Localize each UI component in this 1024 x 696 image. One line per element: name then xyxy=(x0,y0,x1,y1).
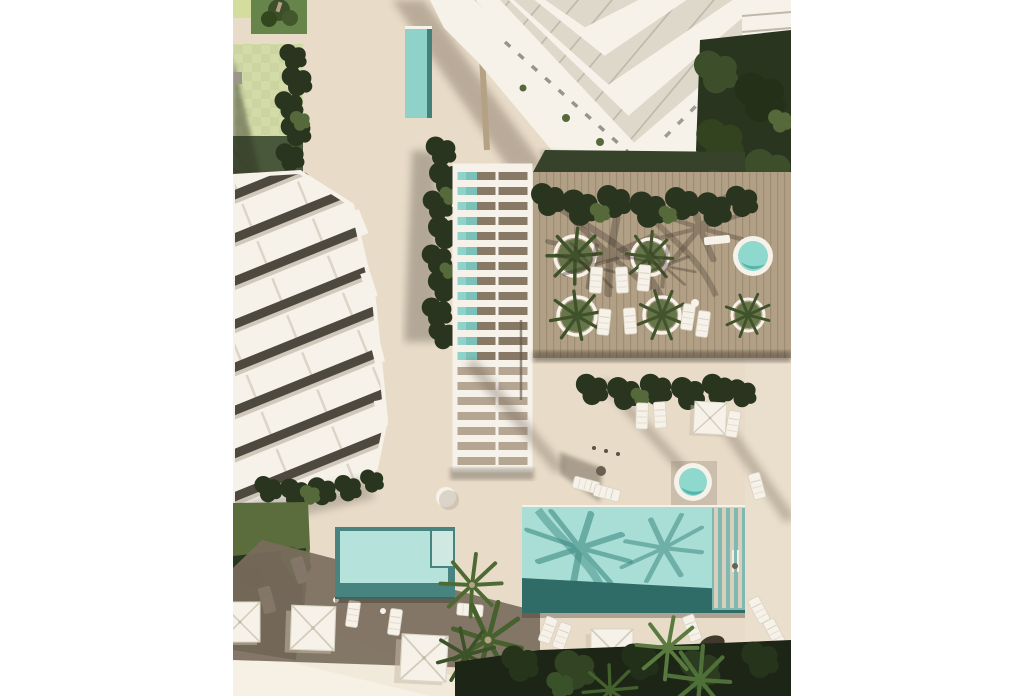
kids-pool xyxy=(335,527,455,603)
pool-steps-right xyxy=(712,508,745,610)
sun-lounger xyxy=(636,403,649,429)
round-spa-upper xyxy=(733,236,773,276)
round-spa-lower xyxy=(671,461,717,505)
sun-lounger xyxy=(589,267,603,294)
terrace-plant xyxy=(562,114,570,122)
court-equipment xyxy=(234,72,242,84)
sun-lounger xyxy=(623,308,637,335)
main-pool xyxy=(515,492,745,618)
court-edge-strip xyxy=(233,0,253,18)
sun-lounger xyxy=(653,402,666,429)
round-table-dark xyxy=(596,466,606,476)
side-table xyxy=(691,299,699,307)
round-table-shadow xyxy=(439,490,459,510)
pergola-end-shadow xyxy=(450,468,534,480)
aerial-render xyxy=(0,0,1024,696)
lawn-square-top-left xyxy=(251,0,307,34)
pool-step-bench xyxy=(568,584,626,613)
timber-sun-deck xyxy=(531,172,791,362)
sun-lounger xyxy=(615,267,628,294)
terrace-plant xyxy=(520,85,527,92)
parasol xyxy=(215,602,260,645)
render-canvas xyxy=(0,0,1024,696)
sun-lounger xyxy=(637,265,651,292)
terrace-plant xyxy=(596,138,604,146)
pool-edge-shadow xyxy=(522,613,745,618)
parasol xyxy=(285,605,336,654)
swimmer xyxy=(732,563,738,569)
side-table xyxy=(380,608,386,614)
parasol xyxy=(689,401,727,437)
sun-lounger xyxy=(597,308,612,335)
deck-edge-shadow xyxy=(533,351,791,362)
tower-lap-pool xyxy=(405,26,432,118)
